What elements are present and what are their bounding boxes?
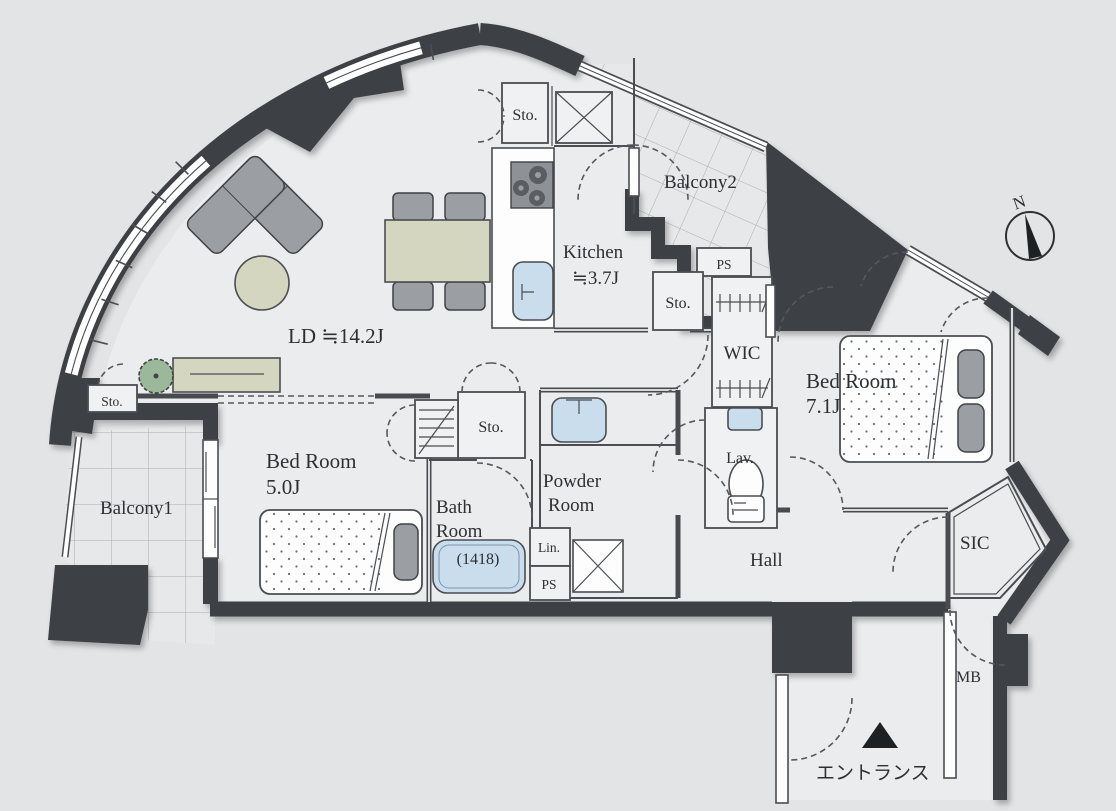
label-bathroom-1: Bath xyxy=(436,497,472,518)
bed-single xyxy=(260,510,422,594)
label-balcony2: Balcony2 xyxy=(664,172,737,193)
label-wic: WIC xyxy=(724,343,761,364)
label-sto-hallway: Sto. xyxy=(478,419,503,436)
label-linen: Lin. xyxy=(538,540,560,555)
label-kitchen: Kitchen xyxy=(563,242,624,263)
label-bathroom-2: Room xyxy=(436,521,483,542)
label-living-dining: LD ≒14.2J xyxy=(288,324,384,348)
label-bedroom-main-size: 7.1J xyxy=(806,394,840,418)
floor-plan: N LD ≒14.2J Kitchen ≒3.7J Balcony2 Balco… xyxy=(0,0,1116,811)
compass-needle xyxy=(1025,214,1042,259)
round-table xyxy=(235,256,289,310)
label-lavatory: Lav. xyxy=(726,450,754,467)
dining-table xyxy=(385,220,490,282)
label-balcony1: Balcony1 xyxy=(100,498,173,519)
label-ps-top: PS xyxy=(716,257,731,272)
label-hall: Hall xyxy=(750,550,783,571)
label-bedroom-main: Bed Room xyxy=(806,369,896,393)
label-ps-bottom: PS xyxy=(541,577,556,592)
label-meter-box: MB xyxy=(956,669,981,686)
label-sic: SIC xyxy=(960,533,990,554)
label-entrance: エントランス xyxy=(816,763,930,784)
kitchen-sink xyxy=(513,262,553,320)
label-bathroom-size: (1418) xyxy=(457,551,500,568)
label-sto-ld-corner: Sto. xyxy=(101,394,122,409)
sideboard xyxy=(173,358,280,392)
label-sto-kitchen-top: Sto. xyxy=(512,107,537,124)
compass-north-label: N xyxy=(1010,191,1028,213)
label-kitchen-size: ≒3.7J xyxy=(572,268,619,289)
lavatory-sink xyxy=(728,408,762,430)
compass: N xyxy=(1006,191,1054,260)
label-bedroom-second: Bed Room xyxy=(266,449,356,473)
bed-double xyxy=(840,336,992,462)
label-powder-1: Powder xyxy=(543,471,602,492)
label-sto-kitchen-side: Sto. xyxy=(665,295,690,312)
label-bedroom-second-size: 5.0J xyxy=(266,475,300,499)
label-powder-2: Room xyxy=(548,495,595,516)
